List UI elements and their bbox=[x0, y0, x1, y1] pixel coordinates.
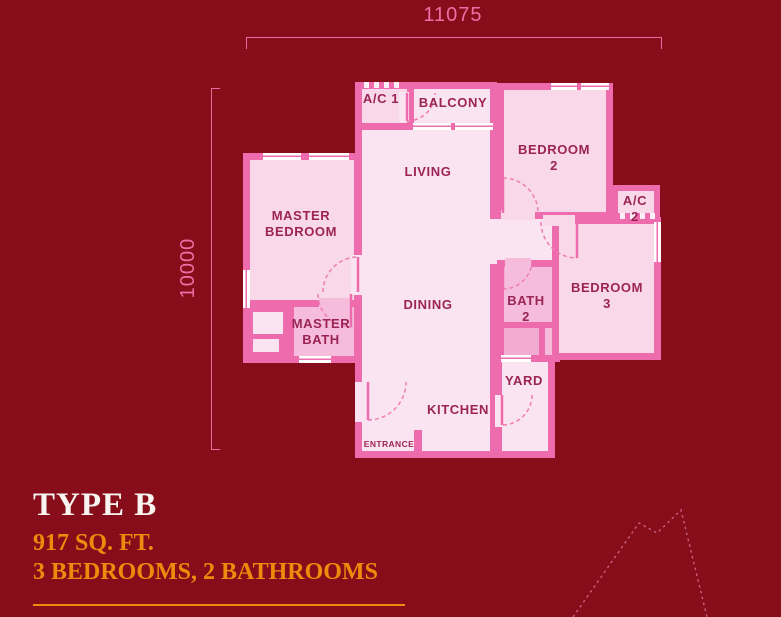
room-label-bedroom2: BEDROOM 2 bbox=[518, 142, 590, 174]
room-label-living: LIVING bbox=[405, 164, 452, 180]
unit-area: 917 SQ. FT. bbox=[33, 530, 378, 556]
unit-type-title: TYPE B bbox=[33, 487, 378, 523]
room-label-bedroom3: BEDROOM 3 bbox=[571, 280, 643, 312]
door-opening-master-bedroom bbox=[351, 255, 363, 295]
room-label-master-bedroom: MASTER BEDROOM bbox=[265, 208, 337, 240]
room-label-dining: DINING bbox=[403, 297, 452, 313]
unit-info: TYPE B 917 SQ. FT. 3 BEDROOMS, 2 BATHROO… bbox=[33, 487, 378, 585]
dimension-height-bracket bbox=[211, 88, 220, 450]
door-opening-bedroom2 bbox=[501, 210, 535, 220]
door-opening-entrance bbox=[355, 382, 363, 422]
room-label-bath2: BATH 2 bbox=[507, 293, 545, 325]
dimension-height-label: 10000 bbox=[177, 208, 201, 328]
dimension-width-label: 11075 bbox=[246, 4, 660, 27]
room-bath2-shower bbox=[504, 328, 545, 355]
room-label-ac2: A/C 2 bbox=[622, 193, 648, 225]
window bbox=[654, 222, 661, 262]
window bbox=[299, 356, 331, 363]
window bbox=[581, 83, 609, 90]
decor-mountain-outline bbox=[540, 500, 781, 617]
door-opening-bath2 bbox=[505, 258, 531, 268]
floor-plan: A/C 1 BALCONY LIVING MASTER BEDROOM BEDR… bbox=[243, 82, 661, 459]
door-opening-balcony bbox=[399, 92, 409, 122]
floorplan-page: 11075 10000 bbox=[0, 0, 781, 617]
room-yard bbox=[495, 355, 555, 458]
ac1-vent bbox=[359, 82, 403, 88]
closet-cell bbox=[253, 339, 279, 352]
window bbox=[551, 83, 577, 90]
closet-cell bbox=[253, 312, 283, 334]
window-sliding-door bbox=[455, 123, 493, 130]
room-label-kitchen: KITCHEN bbox=[427, 402, 489, 418]
window bbox=[263, 153, 301, 160]
room-masterbath-closet-zone bbox=[250, 307, 287, 356]
room-label-entrance: ENTRANCE bbox=[364, 439, 414, 449]
wall-entrance-divider bbox=[414, 430, 422, 451]
door-opening-bedroom3 bbox=[543, 215, 575, 226]
room-label-ac1: A/C 1 bbox=[363, 91, 399, 107]
room-label-master-bath: MASTER BATH bbox=[292, 316, 351, 348]
room-label-yard: YARD bbox=[505, 373, 543, 389]
room-label-balcony: BALCONY bbox=[419, 95, 487, 111]
unit-room-count: 3 BEDROOMS, 2 BATHROOMS bbox=[33, 559, 378, 585]
dimension-width-bracket bbox=[246, 37, 662, 49]
window-sliding-door bbox=[413, 123, 451, 130]
window bbox=[501, 355, 531, 362]
window bbox=[309, 153, 349, 160]
door-opening-yard bbox=[495, 395, 503, 427]
door-opening-master-bath bbox=[319, 298, 351, 308]
divider-line bbox=[33, 604, 405, 606]
window bbox=[243, 270, 250, 308]
